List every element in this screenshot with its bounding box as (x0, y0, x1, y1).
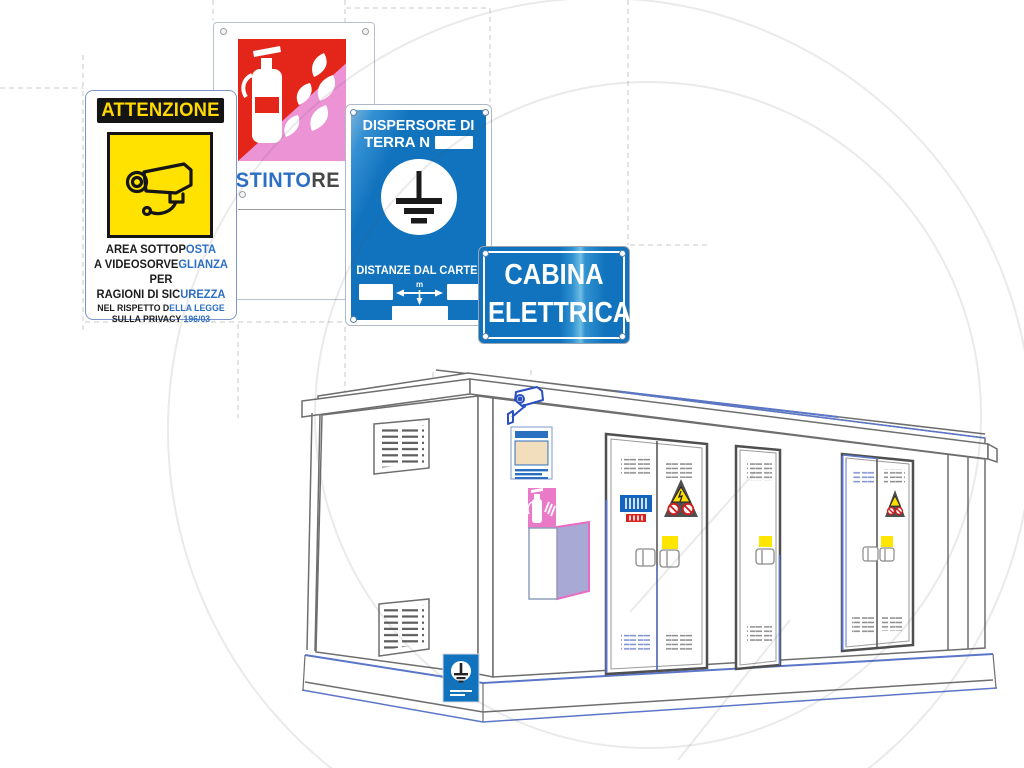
divider-line (238, 209, 360, 210)
fire-extinguisher-flames-icon (238, 39, 346, 161)
blank-distance-box (447, 284, 481, 300)
distance-arrows-icon: m (396, 280, 443, 306)
screw-icon (619, 250, 626, 257)
door-1-warning-cluster (664, 479, 698, 517)
terra-n-label: TERRA N (364, 134, 430, 151)
dispersore-title-line2: TERRA N (351, 134, 486, 151)
cabin-base (302, 654, 997, 722)
blank-number-box (435, 136, 473, 149)
door-1-double (606, 434, 707, 674)
cabin-walls (307, 396, 985, 677)
earth-ground-pictogram (381, 159, 457, 235)
screw-icon (482, 250, 489, 257)
attenzione-header: ATTENZIONE (97, 98, 224, 123)
line-dark: PER (150, 274, 173, 286)
dispersore-panel: DISPERSORE DI TERRA N DISTANZE DAL CARTE… (351, 110, 486, 320)
attenzione-text-block: AREA SOTTOPOSTA A VIDEOSORVEGLIANZA PER … (86, 243, 236, 325)
door-1-yellow-label (662, 536, 678, 549)
line-dark: RAGIONI DI SIC (97, 289, 181, 301)
estintore-label-end: RE (311, 169, 340, 192)
line-dark: A VIDEOSORVE (94, 259, 178, 271)
line-dark: AREA SOTTOP (106, 244, 186, 256)
dispersore-title-line1: DISPERSORE DI (354, 117, 482, 134)
blank-note-box (392, 306, 448, 320)
door-1-handles (636, 549, 679, 567)
illustration-stage: ESTINTORE ATTENZIONE AREA SOTTOPOSTA A V… (0, 0, 1024, 768)
mini-dispersore-sign (443, 654, 479, 702)
line-blue: OSTA (186, 244, 216, 256)
door-3-handles (863, 547, 894, 561)
screw-icon (619, 333, 626, 340)
door-3-yellow-label (881, 536, 893, 547)
wall-vent-grille-upper (374, 419, 429, 474)
cabina-line1: CABINA (488, 256, 620, 294)
cctv-camera-icon (110, 135, 210, 235)
screw-icon (362, 28, 369, 35)
blank-distance-box (359, 284, 393, 300)
cctv-pictogram-frame (107, 132, 213, 238)
cabina-line2: ELETTRICA (488, 294, 620, 332)
line-dark: SULLA PRIVACY (112, 314, 184, 324)
screw-icon (350, 109, 357, 116)
screw-icon (350, 316, 357, 323)
line-blue: GLIANZA (178, 259, 228, 271)
screw-icon (239, 191, 246, 198)
door-2-single (736, 446, 780, 669)
door-2-yellow-label (759, 536, 772, 547)
surveillance-camera-icon (508, 387, 543, 424)
dispersore-di-terra-sign: DISPERSORE DI TERRA N DISTANZE DAL CARTE… (345, 104, 492, 326)
earth-ground-icon (396, 171, 442, 224)
fire-extinguisher-pictogram (238, 39, 346, 161)
meters-label: m (416, 280, 423, 289)
door-3-double (842, 454, 913, 651)
wall-vent-grille-lower (379, 599, 429, 656)
attenzione-videosorveglianza-sign: ATTENZIONE AREA SOTTOPOSTA A VIDEOSORVEG… (85, 90, 237, 320)
estintore-label: ESTINTORE (222, 169, 340, 193)
screw-icon (220, 28, 227, 35)
line-blue: ELLA LEGGE (169, 303, 224, 313)
door-2-handle (756, 549, 774, 564)
cabin-roof (302, 370, 997, 462)
screw-icon (482, 109, 489, 116)
line-blue: UREZZA (180, 289, 225, 301)
line-blue: 196/03 (183, 314, 210, 324)
screw-icon (482, 333, 489, 340)
extinguisher-cabinet (529, 522, 589, 599)
door-1-label-signs (620, 495, 652, 522)
cabina-elettrica-text: CABINA ELETTRICA (488, 256, 620, 332)
door-3-warning-cluster (885, 490, 905, 517)
line-dark: NEL RISPETTO D (97, 303, 169, 313)
mini-extinguisher-sign (528, 488, 556, 529)
mini-attenzione-sign (511, 427, 552, 479)
cabina-elettrica-sign: CABINA ELETTRICA (478, 246, 630, 344)
distances-label: DISTANZE DAL CARTELLO (356, 263, 480, 277)
